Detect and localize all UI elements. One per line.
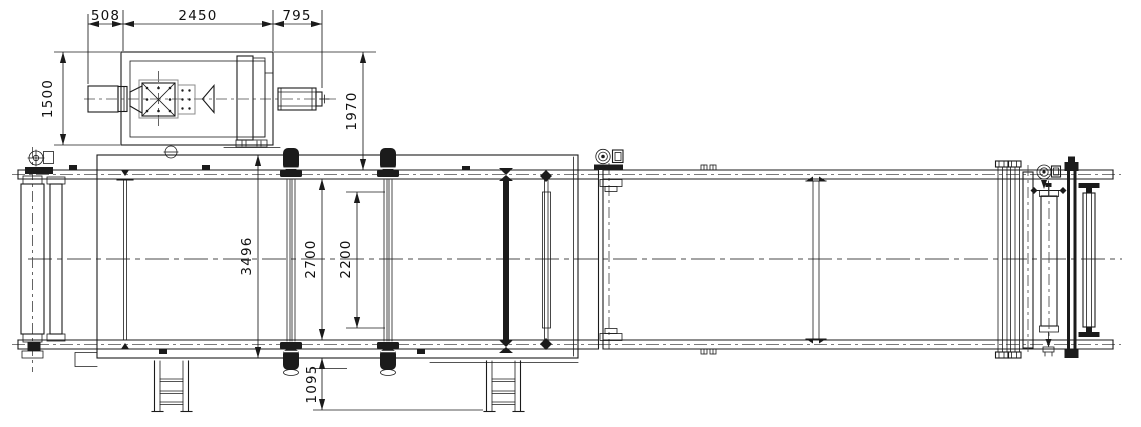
dim-label-2200: 2200 bbox=[338, 239, 354, 278]
tail-bearing-icon bbox=[28, 150, 54, 166]
drawing-sheet: 508 2450 795 1500 1970 3496 bbox=[0, 0, 1141, 427]
rails-right bbox=[603, 170, 1113, 349]
dim-2200: 2200 bbox=[338, 192, 385, 328]
idler-crossbar-1 bbox=[117, 170, 133, 349]
takeup-pulley bbox=[1040, 186, 1059, 356]
head-roller-2 bbox=[1079, 183, 1100, 337]
drive-base-frame bbox=[121, 52, 273, 145]
dim-label-2700: 2700 bbox=[303, 239, 319, 278]
idler-crossbar-3 bbox=[540, 170, 552, 350]
takeup-bobbin-top bbox=[283, 148, 299, 170]
takeup-crossbar-2 bbox=[377, 148, 399, 376]
support-leg-1 bbox=[152, 361, 192, 412]
dim-795: 795 bbox=[273, 8, 322, 88]
dim-label-1970: 1970 bbox=[344, 91, 360, 130]
dim-1500: 1500 bbox=[40, 52, 120, 145]
conveyor-plan-drawing: 508 2450 795 1500 1970 3496 bbox=[0, 0, 1141, 427]
dim-2450: 2450 bbox=[123, 8, 273, 51]
takeup-screw bbox=[1031, 181, 1067, 196]
dim-3496: 3496 bbox=[239, 155, 258, 358]
dim-2700: 2700 bbox=[303, 179, 322, 340]
circle-minus-symbol bbox=[164, 146, 178, 158]
dim-label-1095: 1095 bbox=[304, 364, 320, 403]
dim-label-1500: 1500 bbox=[40, 79, 56, 118]
dim-508: 508 bbox=[88, 8, 123, 84]
dim-label-2450: 2450 bbox=[178, 8, 217, 24]
conveyor-right-section bbox=[603, 157, 1113, 359]
tail-pulley-assembly bbox=[21, 150, 65, 358]
dimension-annotations: 508 2450 795 1500 1970 3496 bbox=[40, 8, 483, 410]
takeup-crossbar-1 bbox=[280, 148, 302, 376]
head-frame-bars bbox=[1065, 157, 1079, 359]
idler-crossbar-2 bbox=[499, 168, 513, 353]
head-plate-channels bbox=[996, 161, 1022, 358]
pillow-block-bearing-icon bbox=[594, 149, 623, 170]
rail-splice bbox=[701, 165, 716, 354]
dim-label-3496: 3496 bbox=[239, 236, 255, 275]
cross-member bbox=[806, 177, 826, 344]
dim-label-508: 508 bbox=[91, 8, 120, 24]
drive-unit bbox=[88, 52, 329, 158]
takeup-bobbin-top bbox=[380, 148, 396, 170]
head-roller-1 bbox=[1023, 165, 1033, 355]
dim-label-795: 795 bbox=[282, 8, 311, 24]
support-leg-2 bbox=[484, 361, 524, 412]
gearbox bbox=[224, 56, 280, 148]
head-assembly bbox=[996, 157, 1100, 359]
